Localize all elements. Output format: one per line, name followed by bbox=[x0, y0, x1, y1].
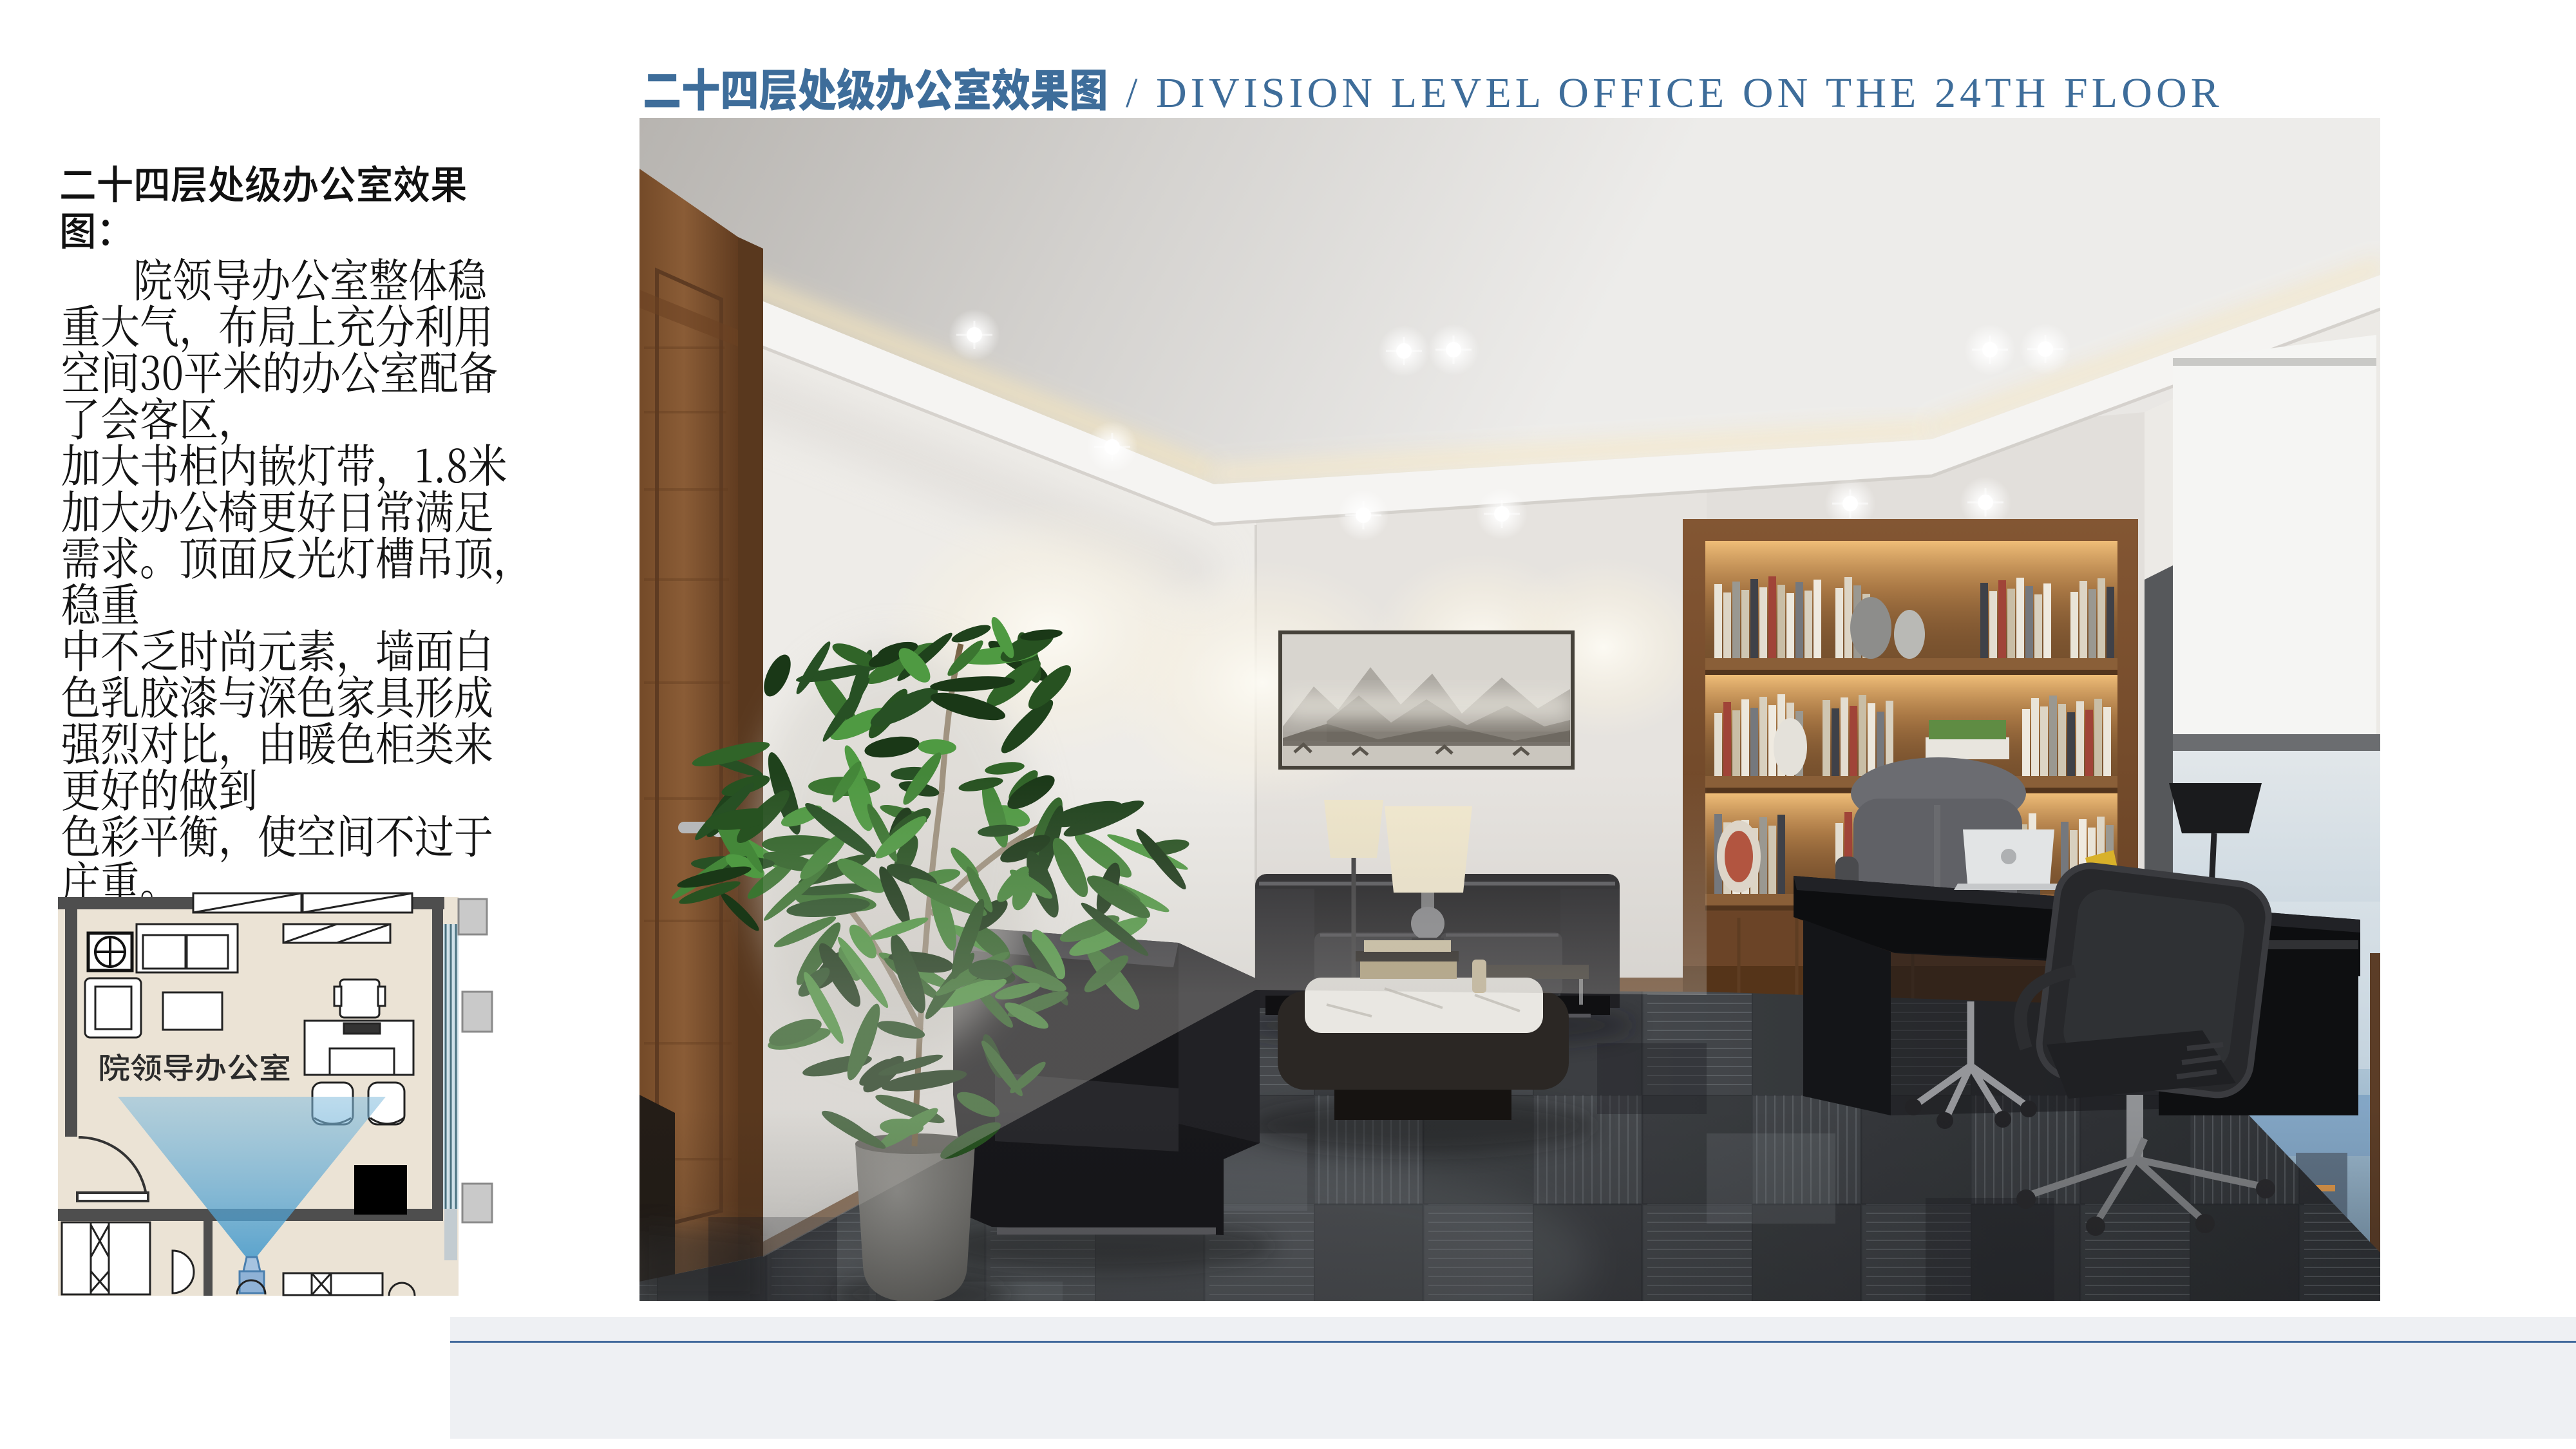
svg-text:/ DIVISION LEVEL OFFICE ON THE: / DIVISION LEVEL OFFICE ON THE 24TH FLOO… bbox=[1126, 70, 2223, 117]
